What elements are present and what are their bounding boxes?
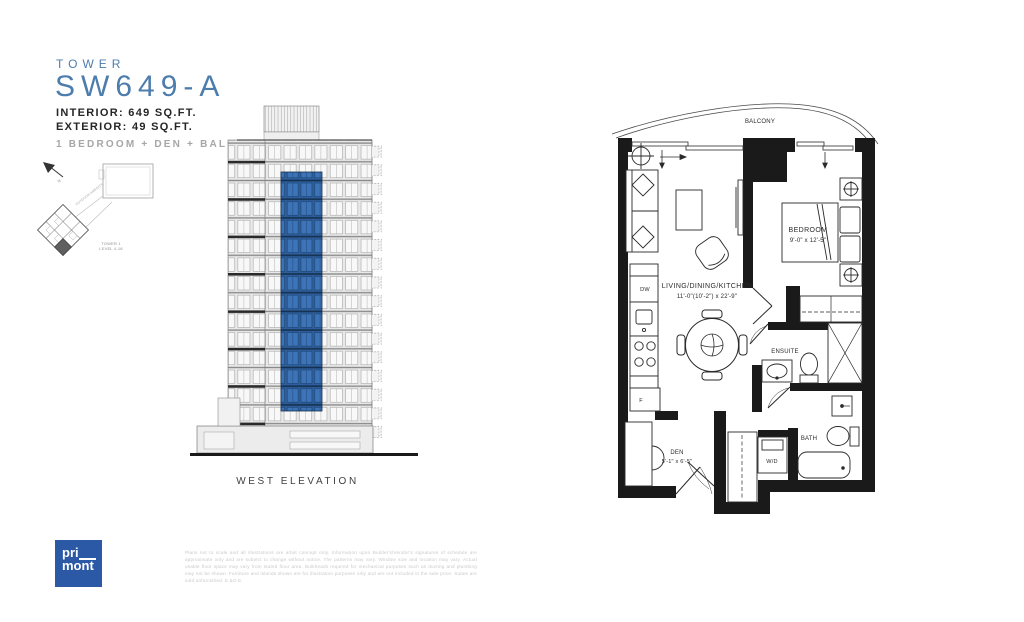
bedroom-dims: 9'-0" x 12'-5" [790, 238, 826, 244]
washer-dryer-label: W/D [766, 459, 777, 465]
keyplan-amenity-label: OUTDOOR AMENITY [75, 182, 105, 207]
building-elevation [190, 86, 440, 490]
site-keyplan: N OUTDOOR AMENITY TOWER 1 LEVEL 4-18 [33, 156, 165, 260]
logo-text-bottom: mont [62, 559, 94, 572]
adjacent-building-outline [99, 164, 153, 198]
slide-arrow-icon [660, 150, 686, 168]
bath-toilet [827, 427, 849, 446]
entry-door [676, 467, 712, 494]
svg-text:N: N [56, 178, 62, 184]
bedroom-window [797, 142, 853, 168]
elevation-caption: WEST ELEVATION [190, 476, 405, 487]
north-arrow-icon: N [43, 162, 63, 184]
coffee-table [676, 190, 702, 230]
sqft-block: INTERIOR: 649 SQ.FT. EXTERIOR: 49 SQ.FT. [56, 106, 197, 134]
washer-dryer [758, 437, 787, 473]
fridge [630, 388, 660, 411]
balcony-label: BALCONY [745, 119, 775, 125]
mechanical-penthouse [264, 106, 319, 140]
bedroom-closet [800, 296, 862, 322]
dining-table [677, 310, 747, 380]
tower-eyebrow: TOWER [56, 57, 125, 71]
brochure-page: TOWER SW649-A INTERIOR: 649 SQ.FT. EXTER… [0, 0, 1024, 622]
dishwasher-label: DW [640, 287, 650, 293]
bath-door [768, 387, 790, 408]
tv [736, 180, 743, 235]
bath-label: BATH [801, 436, 817, 442]
primont-logo: pri mont [55, 540, 102, 587]
legal-disclaimer: Plans not to scale and all illustrations… [185, 549, 477, 585]
den-dims: 5'-1" x 6'-5" [662, 459, 693, 465]
interior-sqft: INTERIOR: 649 SQ.FT. [56, 106, 197, 120]
entry-closet [728, 432, 757, 502]
den-desk [625, 422, 664, 486]
pillow [840, 207, 860, 233]
ensuite-toilet [801, 353, 818, 375]
exterior-sqft: EXTERIOR: 49 SQ.FT. [56, 120, 197, 134]
ensuite-label: ENSUITE [771, 349, 798, 355]
side-balconies [372, 144, 382, 444]
den-label: DEN [670, 450, 683, 456]
keyplan-level-label: LEVEL 4-18 [99, 246, 123, 251]
bathtub [798, 452, 850, 478]
unit-floorplan: BALCONY [610, 90, 885, 525]
highlighted-unit-stack [281, 172, 322, 411]
pillow [840, 236, 860, 262]
bedroom-door [753, 288, 772, 324]
ensuite-door [750, 324, 768, 344]
lounge-chair [693, 234, 732, 273]
sofa [626, 170, 658, 252]
living-dims: 11'-0"(10'-2") x 22'-9" [677, 294, 737, 300]
living-label: LIVING/DINING/KITCHEN [662, 283, 752, 290]
sliding-door [632, 142, 743, 150]
cooktop [630, 336, 658, 376]
bedroom-label: BEDROOM [789, 227, 828, 234]
fridge-label: F [639, 398, 643, 404]
tower-floorplate [38, 205, 89, 256]
